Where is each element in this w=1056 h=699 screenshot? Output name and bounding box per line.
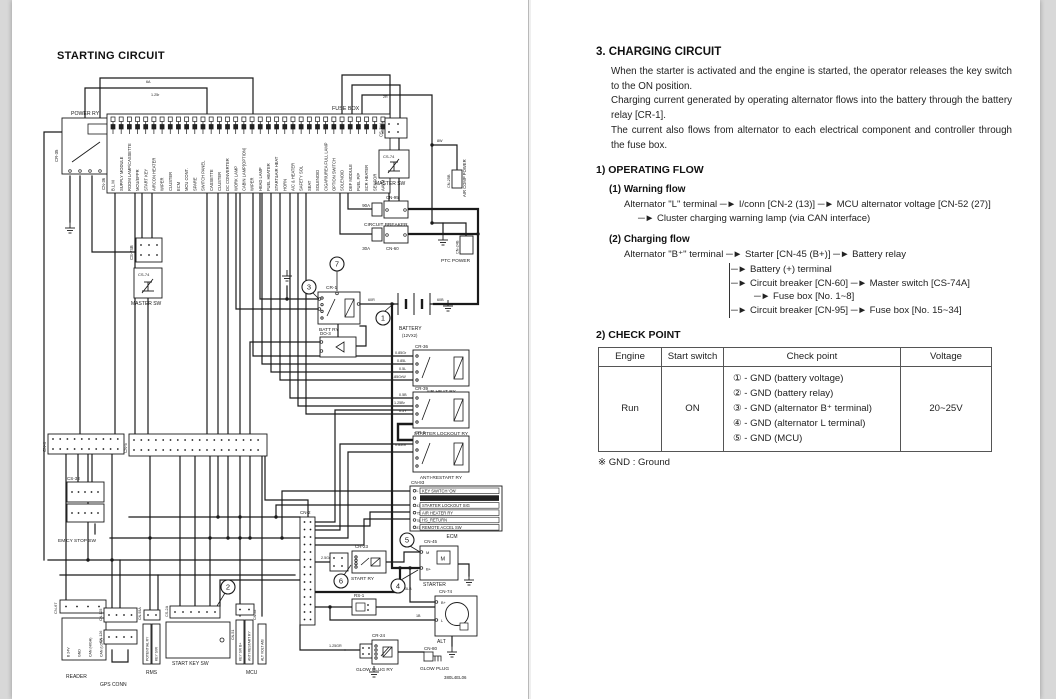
- cs2a-connector: [170, 606, 220, 618]
- label: CN-36: [101, 177, 106, 190]
- wire-label: 1.25Br: [394, 401, 406, 405]
- check-point-heading: 2) CHECK POINT: [596, 329, 1012, 341]
- junction: [248, 536, 251, 539]
- label: SCR HEATER: [364, 165, 369, 191]
- cr24-ref: CR-24: [372, 633, 386, 638]
- junction: [285, 297, 288, 300]
- callout-4: 4: [391, 570, 418, 593]
- label: CIGAR/UREA FULL LAMP: [323, 142, 328, 191]
- label: MCU/EPPR: [135, 169, 140, 191]
- cell-engine: Run: [599, 366, 662, 451]
- label: CASSETTE: [209, 169, 214, 191]
- label: CLUSTER: [168, 172, 173, 191]
- cn4-box: [48, 434, 124, 454]
- junction: [86, 558, 89, 561]
- component-cn2-connector: CN-2: [300, 510, 315, 625]
- label: OPTION SWITCH: [331, 158, 336, 191]
- cb60-amp: 30A: [362, 246, 370, 251]
- junction: [274, 515, 277, 518]
- wire-label: 0.5B: [399, 393, 407, 397]
- junction: [398, 566, 401, 569]
- cr36-box: [413, 350, 469, 386]
- wire-label: 0.5L: [399, 367, 406, 371]
- label: CS-74: [383, 154, 395, 159]
- cr5-ref: CR-5: [415, 430, 426, 435]
- label: WIPER: [160, 178, 165, 191]
- operating-flow-heading: 1) OPERATING FLOW: [596, 164, 1012, 176]
- junction: [430, 221, 433, 224]
- label: MCU CONT.: [184, 168, 189, 191]
- cell-voltage: 20~25V: [901, 366, 992, 451]
- label: CS-2A: [165, 605, 169, 617]
- ground-icon: [438, 234, 448, 245]
- label: CN-125: [99, 609, 103, 621]
- do3-ref: DO-3: [320, 331, 331, 336]
- component-glow-plug: CN-80GLOW PLUG380L4EL06: [420, 646, 467, 680]
- cn2-box: [300, 517, 315, 625]
- callout-number: 4: [396, 582, 400, 591]
- component-circuit-breaker-90a: 90ACN-95CIRCUIT BREAKER: [362, 195, 408, 228]
- cb95-amp: 90A: [362, 203, 370, 208]
- start-key-sw-label: START KEY SW: [172, 661, 209, 667]
- label: CS-74: [138, 272, 150, 277]
- cr23-connector: [330, 553, 348, 571]
- label: SPARE: [192, 177, 197, 191]
- callout-3: 3: [302, 280, 319, 299]
- cr23-ref: CR-23: [355, 544, 369, 549]
- paragraph-2: Charging current generated by operating …: [596, 94, 1012, 123]
- cs74a-connector: [385, 118, 407, 138]
- check-item-1: ① - GND (battery voltage): [733, 371, 894, 386]
- cn5-box: [129, 434, 267, 456]
- cr39-box: [413, 392, 469, 428]
- label: CN-5: [123, 443, 128, 453]
- gps-conn-label: GPS CONN: [100, 682, 127, 688]
- ptc-power-label: PTC POWER: [441, 258, 471, 264]
- check-item-5: ⑤ - GND (MCU): [733, 431, 894, 446]
- col-header-check-point: Check point: [724, 347, 901, 366]
- label: FUEL P/P: [356, 173, 361, 191]
- component-master-switch-mid: CS-74BCS-74MASTER SW: [129, 238, 162, 307]
- starter-label: STARTER: [423, 582, 446, 588]
- wire-label: 2.5Gr: [321, 556, 331, 560]
- label: CN-126: [99, 631, 103, 643]
- cn74-ref: CN-74: [439, 589, 453, 594]
- label: L: [441, 619, 443, 623]
- junction: [280, 536, 283, 539]
- cr39-ref: CR-39: [415, 386, 429, 391]
- label: M: [441, 557, 446, 563]
- component-fuse-box: FUSE BOXCN-36B.L.MSUPPLY MODULEROOM LAMP…: [101, 106, 390, 193]
- component-circuit-breaker-30a: 30ACN-60: [362, 226, 408, 251]
- doc-number: 380L4EL06: [444, 675, 467, 680]
- charging-branch-3: ─► Fuse box [No. 1~8]: [730, 290, 1012, 304]
- cb95-connector: [372, 203, 382, 216]
- label: SOLENOID: [340, 170, 345, 191]
- cr5-box: [413, 436, 469, 472]
- label: ROOM LAMP/CASSETTE: [127, 143, 132, 191]
- ground-icon: [464, 574, 474, 585]
- label: WORK LAMP: [233, 166, 238, 191]
- ptc-connector: [460, 236, 473, 254]
- label: START KEY: [143, 168, 148, 191]
- label: SUPPLY MODULE: [119, 156, 124, 191]
- wire-label: 0.85GrW: [391, 375, 406, 379]
- check-item-3: ③ - GND (alternator B⁺ terminal): [733, 401, 894, 416]
- component-ptc-power: CN-24BPTC POWER: [438, 234, 473, 264]
- label: AIRCON HEATER: [152, 158, 157, 191]
- ground-icon: [443, 300, 453, 311]
- label: DEF MODULE: [348, 164, 353, 191]
- start-ry-label: START RY: [351, 576, 375, 582]
- component-cn5-connector: CN-5: [123, 434, 267, 456]
- charging-branch-2: ─► Circuit breaker [CN-60] ─► Master swi…: [730, 277, 1012, 291]
- junction: [216, 515, 219, 518]
- warning-flow-line-1: Alternator "L" terminal ─► I/conn [CN-2 …: [596, 198, 1012, 212]
- battery-sub: (12VX2): [402, 333, 418, 338]
- ecm-ref: CN-93: [411, 480, 425, 485]
- cb95-ref: CN-95: [386, 195, 399, 200]
- component-master-switch-top: CS-74ACS-74MASTER SW: [375, 118, 409, 187]
- callout-5: 5: [400, 533, 420, 552]
- wire-label: 1.25r: [151, 93, 160, 97]
- mcu-label: MCU: [246, 670, 258, 676]
- label: FUEL HEATER: [266, 163, 271, 191]
- charging-flow-heading: (2) Charging flow: [596, 234, 1012, 245]
- component-rms: POTENTIAL RYKEY S/WCN-93ARMS: [138, 607, 160, 676]
- component-mcu: KEY SW B+ANTI RESTART RYALT VOLT A/BCN-5…: [231, 604, 266, 676]
- warning-flow-heading: (1) Warning flow: [596, 184, 1012, 195]
- wire-label: 1B: [416, 614, 421, 618]
- component-battery: BATTERY(12VX2): [398, 293, 453, 338]
- cr36-ref: CR-36: [415, 344, 429, 349]
- label: ECM: [176, 181, 181, 191]
- label: CLUSTER: [217, 172, 222, 191]
- label: HEAD LAMP: [258, 167, 263, 191]
- component-start-key-switch: CS-2ASTART KEY SW: [165, 605, 230, 667]
- callout-number: 3: [307, 283, 311, 292]
- callout-1: 1: [376, 305, 392, 325]
- cs74b-connector: [136, 238, 162, 262]
- callout-number: 7: [335, 260, 339, 269]
- wire-label: 60R: [368, 298, 375, 302]
- component-ecm: KEY SWITCH 'ON'STARTER LOCKOUT SIGAIR HE…: [410, 480, 502, 540]
- label: 43: [417, 504, 421, 508]
- junction: [430, 143, 433, 146]
- wire-label: 0.85Gr: [395, 351, 407, 355]
- label: STARTER LOCKOUT SIG: [422, 503, 470, 508]
- wire-label: 2R: [383, 95, 388, 99]
- label: GND: [78, 649, 82, 657]
- charging-flow-branches: ─► Battery (+) terminal─► Circuit breake…: [729, 263, 1012, 317]
- label: A/C & HEATER: [291, 163, 296, 191]
- cr5-label: ANTI-RESTART RY: [420, 475, 463, 481]
- label: CN-52: [253, 610, 257, 620]
- warning-flow-line-2: ─► Cluster charging warning lamp (via CA…: [596, 212, 1012, 226]
- junction: [238, 515, 241, 518]
- cr24-connector: [360, 644, 372, 658]
- starting-circuit-diagram: POWER RYCR-35FUSE BOXCN-36B.L.MSUPPLY MO…: [0, 0, 540, 699]
- callout-number: 2: [226, 583, 230, 592]
- label: L: [417, 489, 419, 493]
- wire-label: 0.5Y: [399, 409, 407, 413]
- label: B+: [441, 601, 447, 605]
- master-sw-label: MASTER SW: [375, 181, 406, 187]
- label: CN-51: [231, 630, 235, 640]
- junction: [208, 536, 211, 539]
- air-comp-connector: [452, 170, 462, 188]
- callout-number: 1: [381, 314, 385, 323]
- junction: [148, 536, 151, 539]
- wire-label: 8W: [437, 139, 443, 143]
- label: SWITCH PANEL: [201, 160, 206, 191]
- charging-flow-line-1: Alternator "B⁺" terminal ─► Starter [CN-…: [596, 248, 1012, 262]
- label: START&AIR HEAT: [274, 156, 279, 191]
- mcu-connector: [236, 604, 254, 615]
- label: CN-24B: [456, 240, 460, 254]
- callout-number: 6: [339, 577, 343, 586]
- label: ANTI RESTART RY: [248, 631, 252, 661]
- label: CS-74B: [129, 245, 134, 260]
- junction: [328, 605, 331, 608]
- paragraph-3: The current also flows from alternator t…: [596, 124, 1012, 153]
- battery-label: BATTERY: [399, 326, 422, 332]
- cn93a-connector: [144, 610, 160, 620]
- charging-branch-4: ─► Circuit breaker [CN-95] ─► Fuse box […: [730, 304, 1012, 318]
- wire-label: 60B: [437, 298, 444, 302]
- wire-label: 0.85Gr: [395, 443, 407, 447]
- cs33-ref: CS-33: [67, 476, 80, 481]
- rs1-ref: RS-1: [354, 593, 365, 598]
- emcy-stop-label: EM'CY STOP SW: [58, 538, 96, 544]
- label: KEY SW B+: [239, 643, 243, 661]
- label: B+: [426, 567, 432, 572]
- fuse-box-label: FUSE BOX: [332, 106, 360, 112]
- section-heading: 3. CHARGING CIRCUIT: [596, 46, 1012, 58]
- check-item-4: ④ - GND (alternator L terminal): [733, 416, 894, 431]
- label: POTENTIAL RY: [146, 636, 150, 661]
- callout-number: 5: [405, 536, 409, 545]
- label: B.L.M: [111, 180, 116, 191]
- ecm-label: ECM: [446, 534, 457, 540]
- label: SAFETY SOL: [299, 165, 304, 191]
- junction: [226, 536, 229, 539]
- label: KEY SWITCH 'ON': [422, 488, 456, 493]
- junction: [238, 536, 241, 539]
- cn45-ref: CN-45: [424, 539, 438, 544]
- component-cn4-connector: CN-4: [42, 434, 124, 454]
- glow-plug-label: GLOW PLUG: [420, 666, 449, 672]
- wire-label: 6A: [146, 80, 151, 84]
- check-point-table: Engine Start switch Check point Voltage …: [598, 347, 992, 452]
- cr23-box: [352, 551, 386, 573]
- label: CAN (HIGH): [89, 638, 93, 657]
- cell-start-switch: ON: [662, 366, 724, 451]
- label: 87: [417, 526, 421, 530]
- ground-icon: [447, 646, 457, 657]
- cn2-ref: CN-2: [300, 510, 311, 515]
- junction: [408, 566, 411, 569]
- label: CS-74A: [379, 122, 384, 137]
- cb60-ref: CN-60: [386, 246, 399, 251]
- label: CN-25B: [447, 174, 451, 188]
- wire-label: 0.85L: [397, 359, 406, 363]
- label: DC CONVERTER: [225, 158, 230, 191]
- label: HS_RETURN: [422, 518, 447, 523]
- label: AIR COMP POWER: [462, 159, 467, 197]
- reader-label: READER: [66, 674, 87, 680]
- charging-branch-1: ─► Battery (+) terminal: [730, 263, 1012, 277]
- label: AIR HEATER RY: [422, 510, 453, 515]
- label: ALT VOLT A/B: [261, 639, 265, 661]
- charging-circuit-section: 3. CHARGING CIRCUIT When the starter is …: [596, 46, 1012, 468]
- label: 75: [417, 512, 421, 516]
- label: CN-93A: [138, 607, 142, 620]
- label: 78: [417, 519, 421, 523]
- junction: [110, 558, 113, 561]
- cr1-ref: CR-1: [326, 285, 338, 291]
- label: REMOTE ACCEL SW: [422, 525, 462, 530]
- check-item-2: ② - GND (battery relay): [733, 386, 894, 401]
- wire-label: 1.25GR: [329, 644, 342, 648]
- gnd-footnote: ※ GND : Ground: [596, 457, 1012, 468]
- alt-label: ALT: [437, 639, 446, 645]
- label: SEAT: [307, 180, 312, 191]
- component-rs1: RS-1: [352, 593, 376, 615]
- manual-spread: STARTING CIRCUIT POWER RYCR-35FUSE BOXCN…: [0, 0, 1056, 699]
- label: WIPER: [250, 178, 255, 191]
- label: CR-35: [54, 149, 59, 162]
- junction: [476, 232, 479, 235]
- wire-label: 5LB: [405, 587, 412, 591]
- ground-icon: [65, 222, 75, 233]
- paragraph-1: When the starter is activated and the en…: [596, 65, 1012, 94]
- cell-check-points: ① - GND (battery voltage) ② - GND (batte…: [724, 366, 901, 451]
- label: CABIN LAMP(OPTION): [241, 147, 246, 191]
- power-relay-label: POWER RY: [71, 111, 100, 117]
- col-header-engine: Engine: [599, 347, 662, 366]
- label: B 24V: [67, 647, 71, 657]
- col-header-start-switch: Start switch: [662, 347, 724, 366]
- cn80-ref: CN-80: [424, 646, 438, 651]
- component-alternator: B+LCN-74ALT: [435, 589, 477, 657]
- rms-label: RMS: [146, 670, 158, 676]
- label: CN-4: [42, 442, 47, 452]
- master-sw-mid-label: MASTER SW: [131, 301, 162, 307]
- component-glow-plug-relay: CR-24GLOW PLUG RY: [356, 633, 398, 677]
- label: HORN: [282, 179, 287, 191]
- label: CN-67: [53, 602, 58, 614]
- col-header-voltage: Voltage: [901, 347, 992, 366]
- component-battery-relay: CR-1BATT RY: [318, 285, 360, 333]
- label: SOLENOID: [315, 170, 320, 191]
- component-emcy-stop-switch: CS-33EM'CY STOP SW: [58, 476, 104, 544]
- label: KEY S/W: [155, 646, 159, 661]
- components: POWER RYCR-35FUSE BOXCN-36B.L.MSUPPLY MO…: [42, 80, 502, 688]
- cb60-connector: [372, 228, 382, 241]
- label: M: [426, 550, 429, 555]
- component-anti-restart-relay: CR-5ANTI-RESTART RY: [413, 430, 469, 481]
